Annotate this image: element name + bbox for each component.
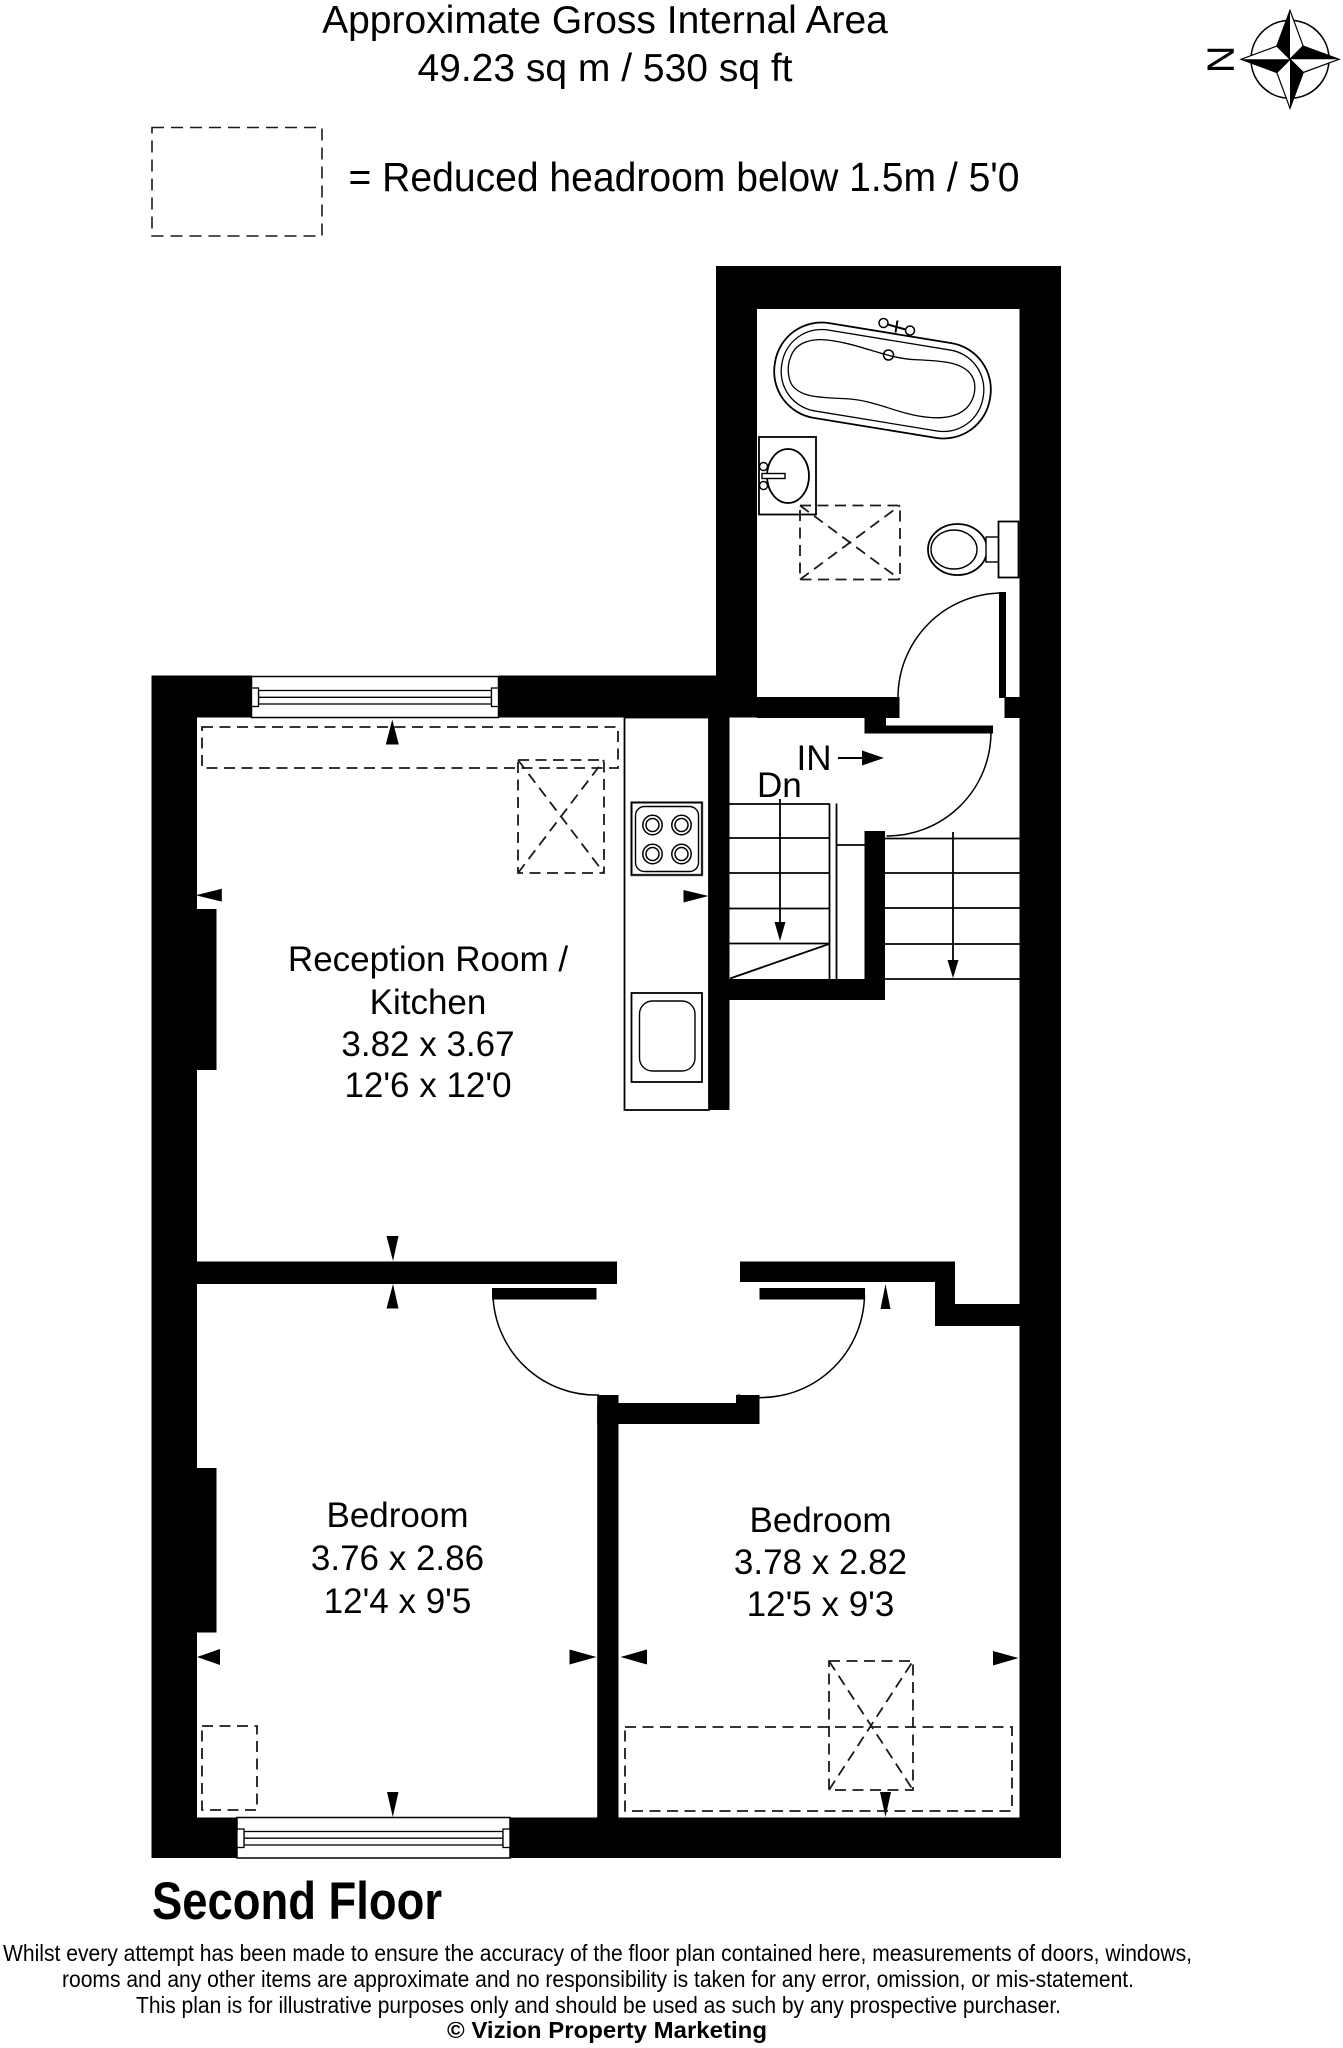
svg-text:N: N [1199,46,1241,73]
svg-text:3.78 x 2.82: 3.78 x 2.82 [734,1543,907,1582]
svg-text:= Reduced headroom below 1.5m: = Reduced headroom below 1.5m / 5'0 [349,154,1020,200]
svg-text:12'4 x 9'5: 12'4 x 9'5 [324,1582,472,1621]
svg-text:Kitchen: Kitchen [370,983,487,1022]
svg-text:Bedroom: Bedroom [749,1501,891,1540]
svg-text:Reception Room /: Reception Room / [288,940,568,979]
svg-text:Dn: Dn [757,766,802,805]
svg-text:3.76 x 2.86: 3.76 x 2.86 [311,1539,484,1578]
svg-text:© Vizion Property Marketing: © Vizion Property Marketing [447,2017,767,2043]
svg-text:12'5 x 9'3: 12'5 x 9'3 [747,1585,895,1624]
svg-text:Approximate Gross Internal Are: Approximate Gross Internal Area [322,0,888,42]
svg-text:3.82 x 3.67: 3.82 x 3.67 [341,1025,514,1064]
svg-text:Second Floor: Second Floor [152,1872,442,1931]
svg-text:Whilst every attempt has been: Whilst every attempt has been made to en… [3,1940,1192,1966]
svg-text:Bedroom: Bedroom [326,1496,468,1535]
svg-text:IN: IN [797,739,832,778]
svg-text:49.23 sq m / 530 sq ft: 49.23 sq m / 530 sq ft [417,47,792,90]
svg-text:rooms and any other items are: rooms and any other items are approximat… [62,1966,1134,1992]
svg-text:This plan is for illustrative: This plan is for illustrative purposes o… [136,1992,1061,2018]
svg-text:12'6 x 12'0: 12'6 x 12'0 [344,1066,511,1105]
